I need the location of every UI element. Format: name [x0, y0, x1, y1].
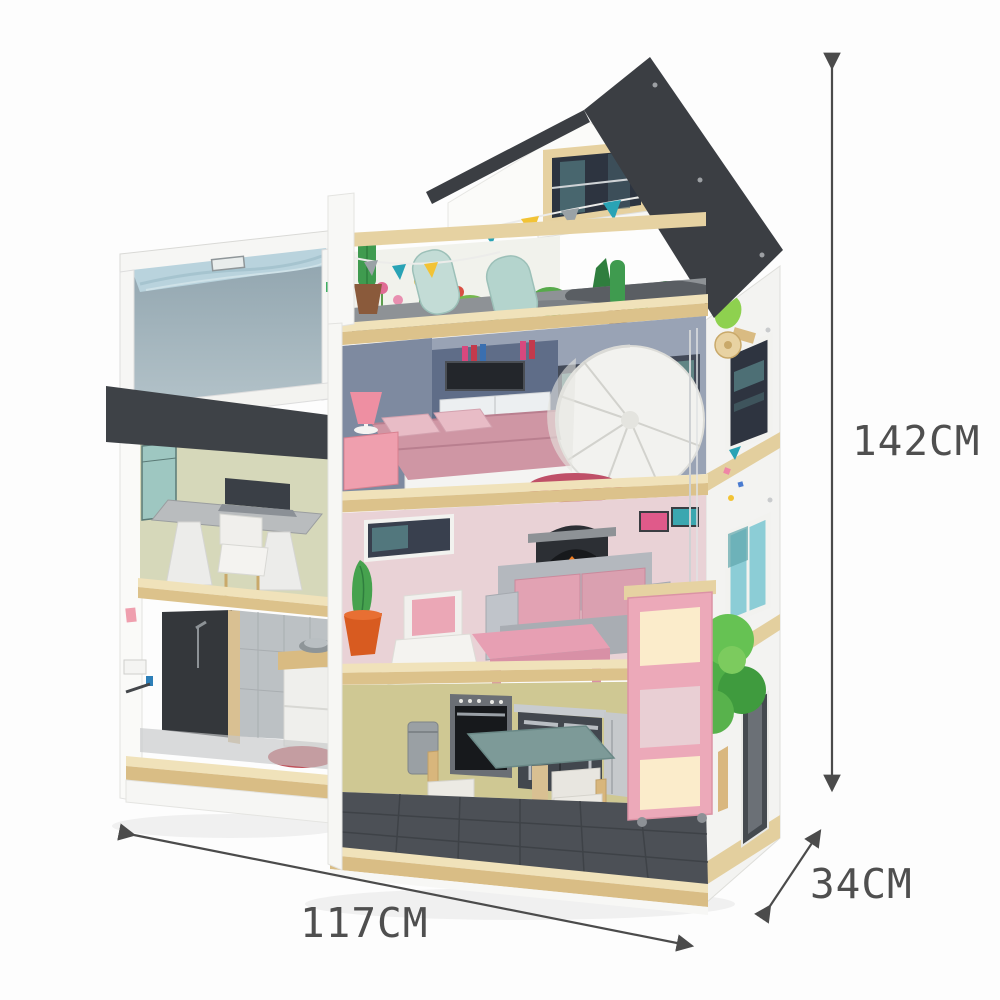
product-dimension-image: 142CM 117CM 34CM: [0, 0, 1000, 1000]
pool-skimmer: [212, 256, 245, 270]
width-dimension-label: 117CM: [300, 899, 428, 947]
dollhouse-illustration: 142CM 117CM 34CM: [0, 0, 1000, 1000]
tower-left-edge: [328, 323, 342, 870]
left-annex: [106, 230, 340, 824]
terrace-side-wall: [328, 193, 354, 328]
depth-dimension-label: 34CM: [810, 860, 913, 908]
cat-tower: [624, 580, 716, 827]
bedroom: [330, 316, 708, 513]
side-window-lower: [728, 516, 768, 622]
height-dimension-label: 142CM: [852, 417, 980, 465]
living-window: [366, 516, 452, 560]
bathroom: [124, 608, 340, 770]
